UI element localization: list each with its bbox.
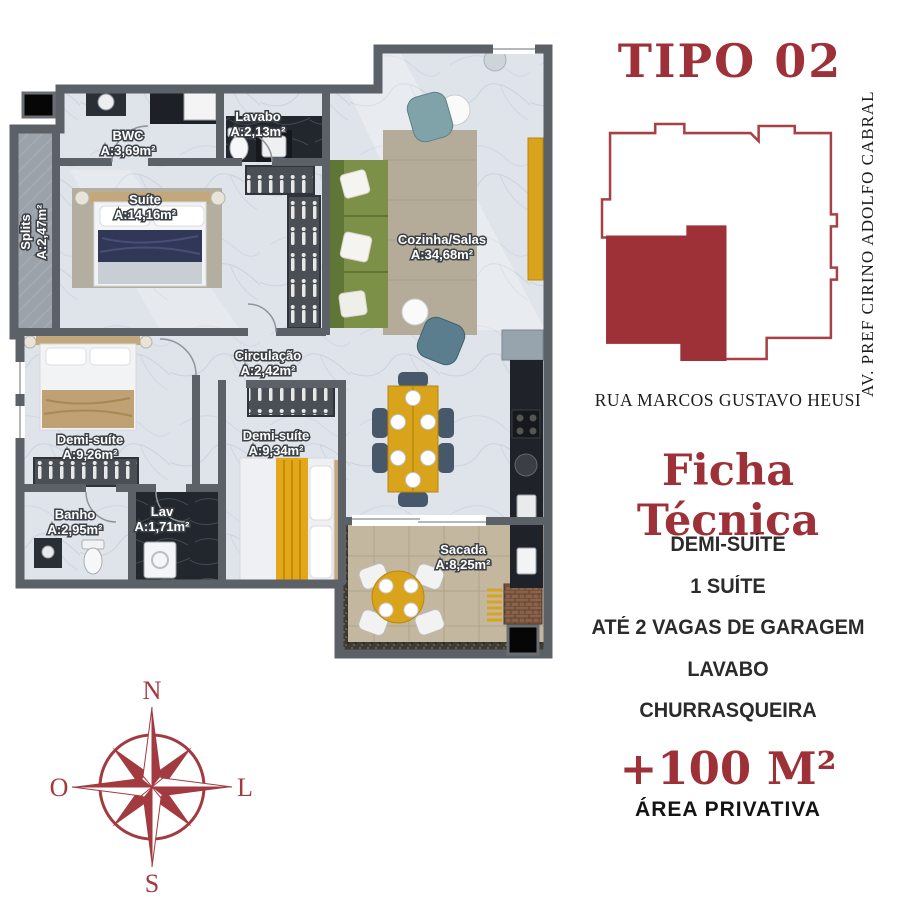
street-label-vertical: AV. PREF CIRINO ADOLFO CABRAL [848, 104, 888, 384]
bwc-basin [98, 94, 114, 110]
feature-item: LAVABO [576, 649, 880, 691]
svg-text:A:2,47m²: A:2,47m² [34, 204, 49, 260]
room-area-suite: A:14,16m² [114, 207, 177, 222]
floor-plan-svg: BWC A:3,69m² Lavabo A:2,13m² Suíte A:14,… [0, 30, 580, 690]
shower-head [42, 546, 54, 558]
street-label-bottom: RUA MARCOS GUSTAVO HEUSI [568, 390, 888, 411]
feature-item: DEMI-SUÍTE [576, 524, 880, 566]
room-area-lav: A:1,71m² [135, 519, 191, 534]
lavabo-sink [262, 136, 286, 157]
room-area-banho: A:2,95m² [48, 522, 104, 537]
location-map-svg [598, 116, 854, 374]
room-label-circulacao: Circulação [235, 348, 302, 363]
floor-plan: BWC A:3,69m² Lavabo A:2,13m² Suíte A:14,… [0, 30, 580, 690]
room-label-demi1: Demi-suíte [57, 432, 123, 447]
compass-n: N [143, 676, 162, 705]
sink-bowl [515, 454, 537, 476]
compass-e: L [237, 773, 253, 802]
closet-row-3 [248, 386, 334, 416]
closet-column [288, 196, 320, 328]
closet-row-2 [34, 458, 138, 486]
feature-item: 1 SUÍTE [576, 566, 880, 608]
room-label-lavabo: Lavabo [235, 109, 281, 124]
sideboard [528, 138, 543, 280]
compass-main-points [72, 707, 232, 867]
closet-row [246, 166, 314, 194]
room-label-demi2: Demi-suíte [243, 428, 309, 443]
unit-highlight [606, 225, 726, 361]
area-value: +100 M² [568, 744, 888, 794]
room-area-sacada: A:8,25m² [436, 557, 492, 572]
laundry [144, 542, 176, 578]
demi-suite-2 [240, 386, 340, 582]
room-area-circulacao: A:2,42m² [241, 363, 297, 378]
compass-svg: N S O L [40, 675, 265, 900]
sink [517, 495, 536, 518]
room-label-cozinha: Cozinha/Salas [398, 232, 486, 247]
stove [512, 410, 540, 438]
round-table-2 [402, 299, 428, 325]
room-area-demi2: A:9,34m² [249, 443, 305, 458]
compass-w: O [50, 773, 69, 802]
room-label-suite: Suíte [129, 192, 161, 207]
blanket-1 [42, 390, 134, 428]
feature-item: CHURRASQUEIRA [576, 690, 880, 732]
page-title: TIPO 02 [580, 34, 880, 88]
floorplan-flyer: BWC A:3,69m² Lavabo A:2,13m² Suíte A:14,… [0, 0, 900, 900]
churrasqueira [504, 584, 542, 624]
room-label-sacada: Sacada [440, 542, 486, 557]
area-label: ÁREA PRIVATIVA [568, 798, 888, 822]
washer [144, 542, 176, 578]
feature-list: DEMI-SUÍTE 1 SUÍTE ATÉ 2 VAGAS DE GARAGE… [568, 524, 888, 732]
private-area-block: +100 M² ÁREA PRIVATIVA [568, 744, 888, 822]
room-label-banho: Banho [55, 507, 96, 522]
room-area-cozinha: A:34,68m² [411, 247, 474, 262]
room-area-lavabo: A:2,13m² [231, 124, 287, 139]
svg-text:Splits: Splits [18, 214, 33, 249]
suite-blanket [98, 230, 202, 262]
compass-rose: N S O L [40, 675, 265, 900]
compass-s: S [145, 869, 159, 898]
toilet-2 [84, 548, 102, 574]
room-area-demi1: A:9,26m² [63, 447, 119, 462]
room-label-lav: Lav [151, 504, 174, 519]
shower-tray [184, 93, 216, 120]
demi-suite-1 [24, 334, 152, 486]
fridge [502, 330, 543, 360]
column-top [23, 93, 54, 117]
location-map [598, 116, 854, 374]
toilet [230, 136, 248, 160]
column-bottom [508, 626, 538, 654]
room-label-bwc: BWC [112, 128, 144, 143]
room-area-bwc: A:3,69m² [101, 143, 157, 158]
feature-item: ATÉ 2 VAGAS DE GARAGEM [576, 607, 880, 649]
